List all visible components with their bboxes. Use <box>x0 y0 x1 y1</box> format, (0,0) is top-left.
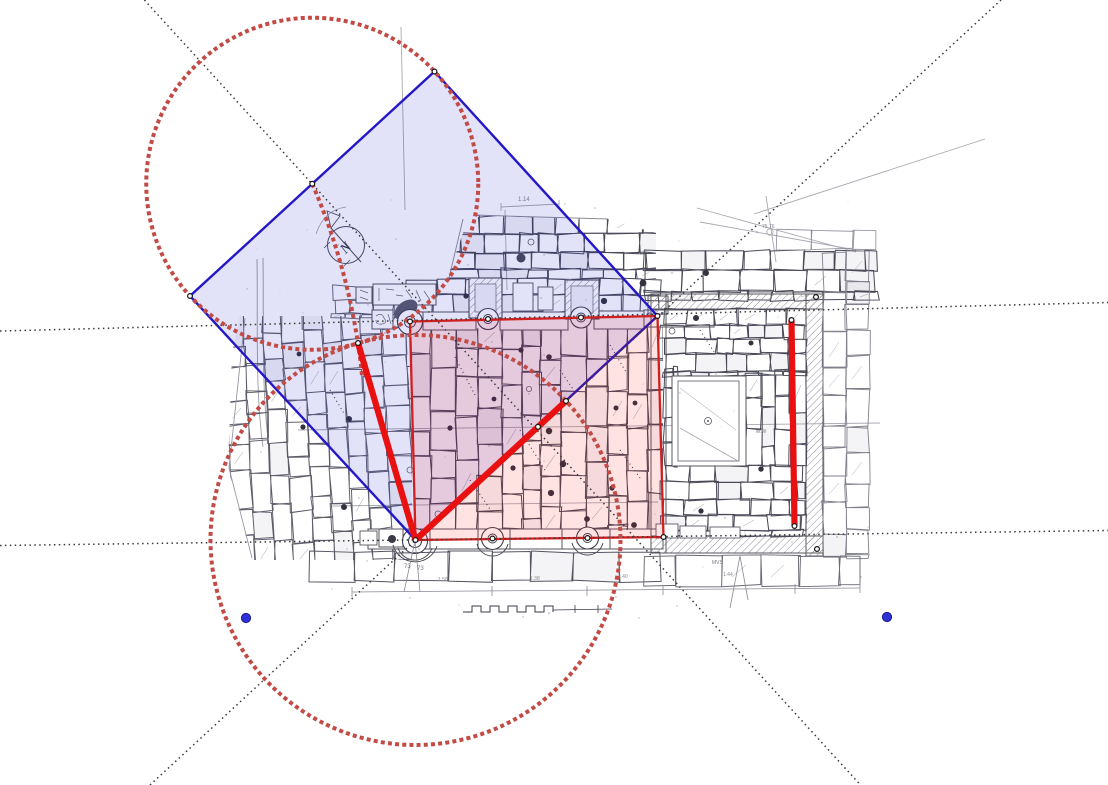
svg-text:73: 73 <box>417 566 424 572</box>
svg-text:1.58: 1.58 <box>438 577 448 583</box>
svg-text:75 76: 75 76 <box>762 224 775 230</box>
svg-text:MVS: MVS <box>712 560 724 566</box>
svg-text:1.40: 1.40 <box>618 574 628 580</box>
svg-text:M.W: M.W <box>756 429 767 435</box>
svg-text:1.38: 1.38 <box>530 576 540 582</box>
svg-text:1.44: 1.44 <box>723 572 733 578</box>
svg-text:73: 73 <box>404 564 411 570</box>
